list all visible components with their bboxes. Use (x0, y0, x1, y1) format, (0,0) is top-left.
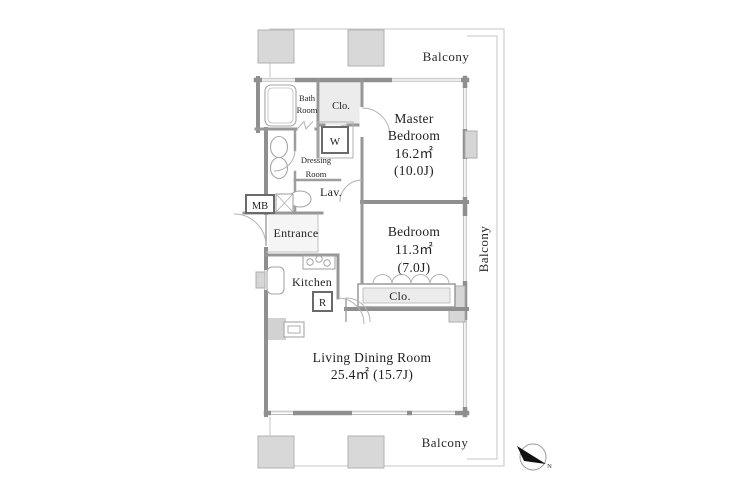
kitchen-label: Kitchen (292, 275, 332, 289)
meter-box-label: MB (252, 201, 268, 212)
washer-label: W (330, 136, 341, 148)
master-bedroom-label-1: Master (394, 111, 433, 126)
living-dining-label: Living Dining Room (313, 350, 432, 365)
floor-plan: Bath Room Clo. W Dressing Room Lav. MB E… (0, 0, 750, 500)
bedroom-area: 11.3㎡ (395, 242, 433, 257)
floor-plan-page: Bath Room Clo. W Dressing Room Lav. MB E… (0, 0, 750, 500)
kitchen-corner-block (266, 318, 286, 340)
toilet (271, 137, 288, 158)
pillar-top-left (258, 30, 294, 63)
kitchen-sink (267, 267, 284, 294)
bedroom-tatami: (7.0J) (398, 260, 431, 275)
living-dining-area: 25.4㎡ (15.7J) (331, 367, 413, 382)
balcony-right-label: Balcony (476, 226, 491, 273)
bedroom-closet-label: Clo. (389, 289, 411, 303)
bath-room-label-2: Room (297, 105, 318, 115)
pillar-bottom-mid (348, 436, 384, 468)
balcony-top-label: Balcony (423, 49, 470, 64)
bathtub (265, 85, 296, 126)
pillar-bottom-left (258, 436, 294, 468)
kitchen-appliance (284, 322, 304, 337)
master-bedroom-label-2: Bedroom (388, 128, 441, 143)
lavatory-label: Lav. (320, 185, 342, 199)
dressing-room-label-1: Dressing (301, 155, 332, 165)
master-bedroom-area: 16.2㎡ (395, 146, 434, 161)
compass-north-label: N (547, 463, 552, 470)
master-bedroom-tatami: (10.0J) (394, 163, 434, 178)
pillar-top-mid (348, 30, 384, 66)
bath-room-label-1: Bath (299, 93, 316, 103)
ac-sleeve-block (465, 131, 477, 158)
balcony-bottom-label: Balcony (422, 435, 469, 450)
entrance-label: Entrance (273, 226, 318, 240)
dressing-room-label-2: Room (306, 169, 327, 179)
bedroom-label: Bedroom (388, 224, 441, 239)
kitchen-wall-bump (256, 272, 265, 288)
refrigerator-label: R (319, 297, 327, 309)
closet-top-label: Clo. (332, 101, 350, 112)
